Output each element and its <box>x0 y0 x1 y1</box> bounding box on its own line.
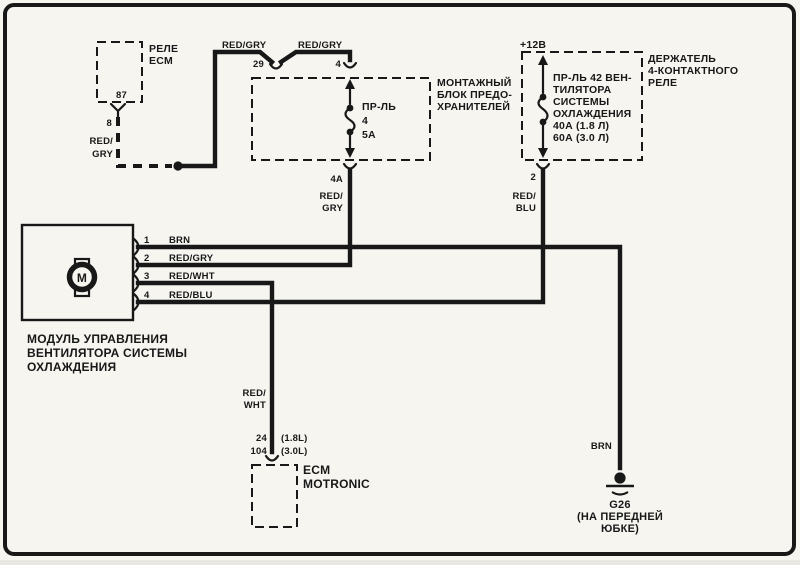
svg-text:ЮБКЕ): ЮБКЕ) <box>601 523 639 535</box>
svg-text:BLU: BLU <box>516 203 536 214</box>
arrow-down-icon <box>345 148 355 158</box>
terminal-4-label: 4 <box>336 59 342 70</box>
wire-color-label: RED/GRY <box>222 40 267 51</box>
connector-pin-8-label: 8 <box>107 118 112 129</box>
wire-color-label: RED/ <box>90 136 114 147</box>
module-pin-number: 2 <box>144 253 149 264</box>
svg-text:ОХЛАЖДЕНИЯ: ОХЛАЖДЕНИЯ <box>553 108 631 120</box>
fuse-element-icon <box>539 97 548 122</box>
ground-location: (НА ПЕРЕДНЕЙ <box>577 510 663 523</box>
svg-text:40А (1.8 Л): 40А (1.8 Л) <box>553 120 609 132</box>
wire-red-gry-relay-dashed <box>118 117 172 166</box>
svg-text:СИСТЕМЫ: СИСТЕМЫ <box>553 96 609 108</box>
terminal-29-label: 29 <box>253 59 264 70</box>
terminal-4a-label: 4A <box>330 174 343 185</box>
svg-text:ECM: ECM <box>149 55 173 67</box>
module-pin-number: 4 <box>144 290 150 301</box>
svg-text:GRY: GRY <box>92 149 113 160</box>
ecm-terminal-104: 104 <box>251 446 268 457</box>
svg-text:60А (3.0 Л): 60А (3.0 Л) <box>553 132 609 144</box>
plus-12v-label: +12В <box>520 39 546 51</box>
svg-text:ХРАНИТЕЛЕЙ: ХРАНИТЕЛЕЙ <box>437 100 510 113</box>
svg-text:5А: 5А <box>362 129 376 141</box>
wire-red-gry-to-module <box>138 171 350 265</box>
wire-color-label: RED/ <box>243 388 267 399</box>
wire-color-label: RED/ <box>320 191 344 202</box>
wire-color-label: BRN <box>169 235 190 246</box>
svg-text:ОХЛАЖДЕНИЯ: ОХЛАЖДЕНИЯ <box>27 360 116 374</box>
terminal-socket-icon <box>266 456 278 461</box>
fuse-element-icon <box>346 108 355 132</box>
svg-text:GRY: GRY <box>322 203 343 214</box>
fuse-block-name: МОНТАЖНЫЙ <box>437 76 512 89</box>
svg-text:ВЕНТИЛЯТОРА СИСТЕМЫ: ВЕНТИЛЯТОРА СИСТЕМЫ <box>27 346 187 360</box>
wire-color-label: RED/GRY <box>169 253 214 264</box>
terminal-socket-icon <box>537 164 549 169</box>
ground-name: G26 <box>609 499 630 511</box>
svg-text:4: 4 <box>362 115 368 127</box>
relay-holder-name: ДЕРЖАТЕЛЬ <box>648 53 716 65</box>
terminal-socket-icon <box>344 164 356 169</box>
engine-note: (1.8L) <box>281 433 308 444</box>
wire-color-label: BRN <box>591 441 612 452</box>
fuse-4-label: ПР-ЛЬ <box>362 101 396 113</box>
arrow-down-icon <box>538 148 548 158</box>
connector-y-icon <box>111 104 125 117</box>
module-pin-number: 1 <box>144 235 150 246</box>
svg-text:БЛОК ПРЕДО-: БЛОК ПРЕДО- <box>437 89 512 101</box>
wire-color-label: RED/ <box>513 191 537 202</box>
svg-text:WHT: WHT <box>244 400 266 411</box>
wire-color-label: RED/WHT <box>169 271 215 282</box>
engine-note: (3.0L) <box>281 446 308 457</box>
wiring-diagram-page: РЕЛЕ ECM 87 8 RED/ GRY RED/GRY 29 RED/GR… <box>0 0 800 560</box>
terminal-socket-icon <box>344 63 356 68</box>
svg-text:MOTRONIC: MOTRONIC <box>303 477 370 491</box>
fan-module-caption: МОДУЛЬ УПРАВЛЕНИЯ <box>27 332 168 346</box>
ecm-name: ECM <box>303 463 330 477</box>
svg-text:РЕЛЕ: РЕЛЕ <box>648 77 677 89</box>
ground-icon <box>614 472 625 483</box>
wire-color-label: RED/BLU <box>169 290 213 301</box>
relay-pin-87-label: 87 <box>116 90 127 101</box>
svg-text:ТИЛЯТОРА: ТИЛЯТОРА <box>553 84 612 96</box>
relay-ecm-label: РЕЛЕ <box>149 43 178 55</box>
wire-color-label: RED/GRY <box>298 40 343 51</box>
module-pin-number: 3 <box>144 271 149 282</box>
motor-letter: M <box>77 271 87 285</box>
fuse-block-box <box>252 78 430 160</box>
cooling-fan-wiring-diagram: РЕЛЕ ECM 87 8 RED/ GRY RED/GRY 29 RED/GR… <box>0 0 800 560</box>
wire-red-wht-to-ecm <box>138 283 272 452</box>
ecm-box <box>252 465 297 527</box>
fan-fuse-label: ПР-ЛЬ 42 ВЕН- <box>553 72 632 84</box>
terminal-socket-icon <box>270 64 282 69</box>
ground-icon <box>612 492 628 495</box>
terminal-2-label: 2 <box>531 172 536 183</box>
ecm-terminal-24: 24 <box>256 433 267 444</box>
svg-text:4-КОНТАКТНОГО: 4-КОНТАКТНОГО <box>648 65 738 77</box>
